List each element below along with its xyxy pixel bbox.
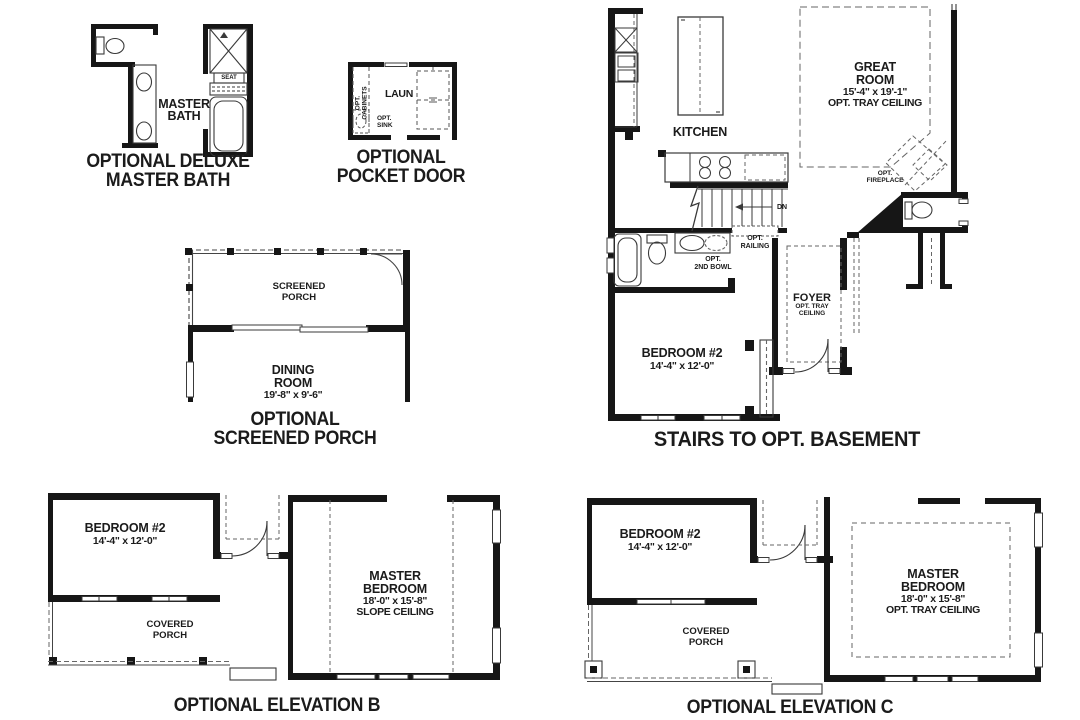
bedroom2-label: BEDROOM #2 (642, 347, 723, 360)
foyer-note-2: CEILING (799, 311, 825, 318)
elevb-bedroom2-dims: 14'-4" x 12'-0" (93, 536, 157, 547)
elevc-covered-porch-label-1: COVERED (683, 627, 730, 637)
pocket-door-caption-2: POCKET DOOR (337, 167, 465, 186)
pocket-door-caption-1: OPTIONAL (356, 148, 445, 167)
elevation-b-drawing (40, 485, 510, 707)
great-room-label-2: ROOM (856, 74, 894, 87)
screened-porch-caption-1: OPTIONAL (250, 410, 339, 429)
elevb-master-label-2: BEDROOM (363, 583, 427, 596)
deluxe-master-bath-caption-2: MASTER BATH (106, 171, 230, 190)
elevc-master-label-2: BEDROOM (901, 581, 965, 594)
elevb-master-dims: 18'-0" x 15'-8" (363, 596, 427, 607)
elevb-master-label-1: MASTER (369, 570, 421, 583)
opt-railing-label-2: RAILING (741, 243, 770, 250)
opt-fireplace-label-2: FIREPLACE (867, 178, 904, 185)
great-room-label-1: GREAT (854, 61, 896, 74)
opt-cabinets-label-2: CABINETS (362, 86, 369, 119)
elevb-master-note: SLOPE CEILING (356, 607, 433, 618)
opt-cabinets-label-1: OPT. (355, 86, 362, 119)
elevc-master-label-1: MASTER (907, 568, 959, 581)
elevb-bedroom2-label: BEDROOM #2 (85, 522, 166, 535)
bedroom2-dims: 14'-4" x 12'-0" (650, 361, 714, 372)
seat-label: SEAT (221, 75, 237, 81)
elevb-covered-porch-label-1: COVERED (147, 620, 194, 630)
opt-railing-label-1: OPT. (747, 235, 763, 242)
down-arrow-icon (735, 204, 743, 211)
master-bath-room-label-2: BATH (168, 110, 201, 123)
elevation-b-caption: OPTIONAL ELEVATION B (174, 696, 380, 715)
elevb-covered-porch-label-2: PORCH (153, 631, 187, 641)
elevation-c-drawing (580, 485, 1050, 711)
elevation-c-caption: OPTIONAL ELEVATION C (687, 698, 893, 717)
dining-room-label-1: DINING (272, 364, 315, 377)
screened-porch-label-2: PORCH (282, 293, 316, 303)
stairs-basement-caption: STAIRS TO OPT. BASEMENT (654, 429, 920, 451)
deluxe-master-bath-drawing (60, 10, 280, 160)
great-room-note: OPT. TRAY CEILING (828, 98, 922, 109)
elevc-bedroom2-label: BEDROOM #2 (620, 528, 701, 541)
deluxe-master-bath-caption-1: OPTIONAL DELUXE (86, 152, 249, 171)
screened-porch-label-1: SCREENED (273, 282, 326, 292)
dining-room-dims: 19'-8" x 9'-6" (264, 390, 323, 401)
opt-2nd-bowl-label-1: OPT. (705, 256, 721, 263)
elevc-bedroom2-dims: 14'-4" x 12'-0" (628, 542, 692, 553)
floorplan-sheet: MASTER BATH SEAT OPTIONAL DELUXE MASTER … (0, 0, 1080, 720)
opt-cabinets-label: OPT. CABINETS (355, 86, 370, 119)
down-label: DN (777, 204, 787, 211)
laundry-label: LAUN (385, 89, 413, 100)
elevc-master-note: OPT. TRAY CEILING (886, 605, 980, 616)
opt-sink-label-2: SINK (377, 123, 393, 130)
kitchen-label: KITCHEN (673, 126, 727, 139)
showerhead-icon (220, 32, 228, 38)
opt-2nd-bowl-label-2: 2ND BOWL (694, 264, 731, 271)
great-room-dims: 15'-4" x 19'-1" (843, 87, 907, 98)
dining-room-label-2: ROOM (274, 377, 312, 390)
elevc-covered-porch-label-2: PORCH (689, 638, 723, 648)
screened-porch-caption-2: SCREENED PORCH (213, 429, 376, 448)
elevc-master-dims: 18'-0" x 15'-8" (901, 594, 965, 605)
